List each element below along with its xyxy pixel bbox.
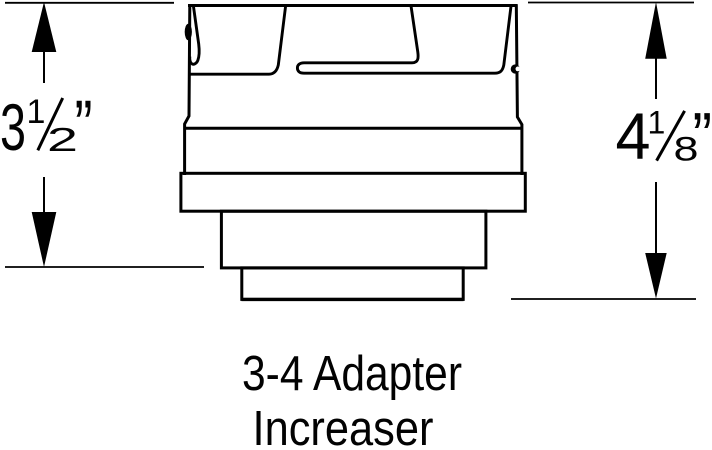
svg-text:3: 3: [0, 90, 26, 164]
svg-text:2: 2: [47, 121, 78, 158]
svg-text:3-4 Adapter: 3-4 Adapter: [242, 346, 462, 401]
svg-text:”: ”: [75, 87, 93, 166]
svg-text:Increaser: Increaser: [253, 401, 434, 450]
svg-text:4: 4: [616, 99, 651, 173]
svg-text:”: ”: [693, 99, 712, 174]
svg-text:1: 1: [27, 93, 46, 131]
svg-text:1: 1: [648, 105, 666, 141]
